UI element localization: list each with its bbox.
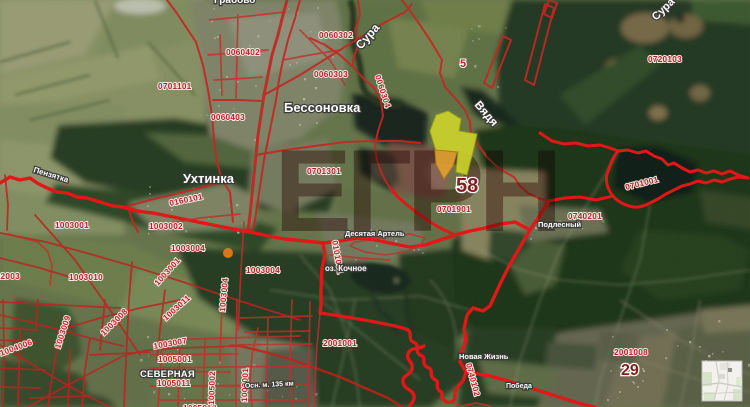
svg-text:1003002: 1003002 [149,222,183,231]
svg-text:0720103: 0720103 [648,55,682,64]
svg-text:СЕВЕРНАЯ: СЕВЕРНАЯ [140,369,195,380]
svg-text:0060302: 0060302 [319,31,353,40]
svg-text:Победа: Победа [506,382,532,390]
svg-text:Десятая Артель: Десятая Артель [345,229,405,238]
svg-text:2001001: 2001001 [323,339,357,348]
svg-text:1003004: 1003004 [171,244,205,253]
svg-text:Подлесный: Подлесный [538,220,581,229]
svg-text:0701901: 0701901 [437,205,471,214]
svg-text:1005002: 1005002 [207,371,217,405]
svg-text:оз. Кочное: оз. Кочное [325,264,367,273]
svg-text:5: 5 [460,58,466,70]
svg-text:ЕГРН: ЕГРН [274,125,557,256]
svg-text:0060402: 0060402 [226,48,260,57]
svg-text:0701101: 0701101 [158,82,192,91]
svg-text:29: 29 [621,362,639,379]
svg-text:Грабово: Грабово [214,0,255,6]
svg-text:0060303: 0060303 [314,70,348,79]
svg-text:1005011: 1005011 [157,379,191,388]
svg-text:1003004: 1003004 [246,266,280,275]
svg-text:Бессоновка: Бессоновка [284,100,361,115]
svg-text:1002003: 1002003 [0,272,20,281]
svg-text:1003010: 1003010 [69,273,103,282]
svg-text:1005001: 1005001 [158,355,192,364]
svg-text:2001008: 2001008 [614,348,648,357]
svg-text:1003001: 1003001 [55,221,89,230]
svg-text:0701301: 0701301 [307,167,341,176]
svg-text:Ухтинка: Ухтинка [183,171,235,186]
svg-text:0060403: 0060403 [211,113,245,122]
svg-text:58: 58 [456,175,478,197]
svg-text:Новая Жизнь: Новая Жизнь [459,352,509,361]
